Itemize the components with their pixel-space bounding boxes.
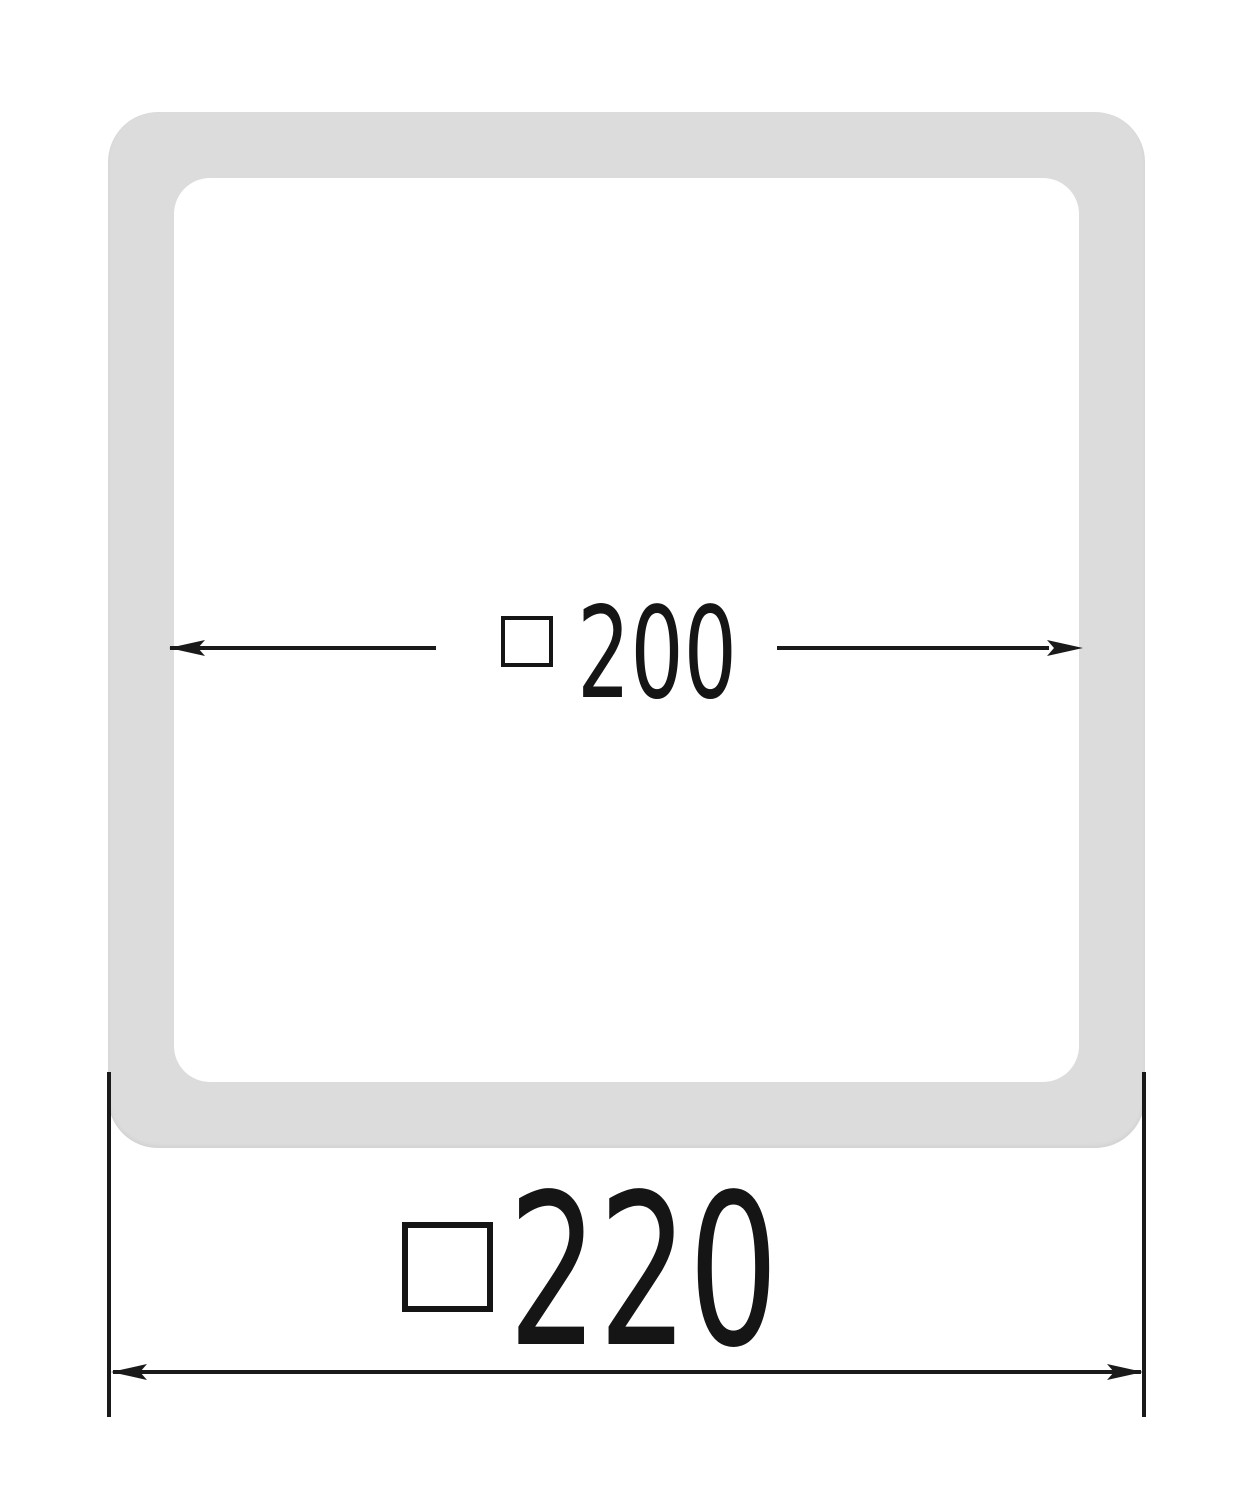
outer-dim-arrow-left-icon — [111, 1362, 147, 1382]
inner-dim-line-right — [777, 646, 1049, 650]
outer-dim-line — [113, 1370, 1141, 1374]
inner-dim-square-symbol-icon — [501, 616, 553, 667]
outer-dim-square-symbol-icon — [402, 1222, 493, 1312]
outer-dim-arrow-right-icon — [1107, 1362, 1143, 1382]
outer-dim-value: 220 — [508, 1198, 779, 1346]
technical-drawing-canvas: 200 220 — [0, 0, 1242, 1489]
inner-dim-value: 200 — [577, 606, 737, 700]
inner-dim-arrow-right-icon — [1047, 638, 1083, 658]
inner-dim-line-left — [170, 646, 436, 650]
